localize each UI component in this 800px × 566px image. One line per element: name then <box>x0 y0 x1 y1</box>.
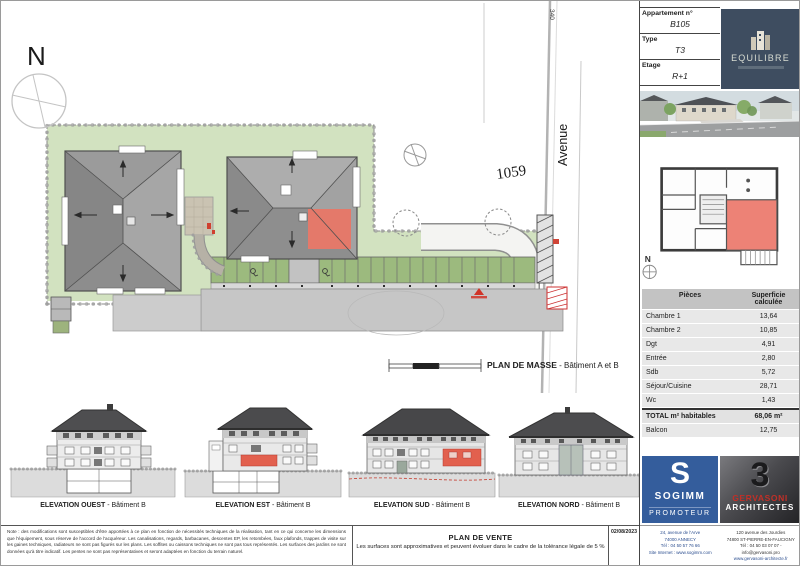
table-row: Entrée2,80 <box>642 352 799 365</box>
elevation-ouest-suffix: - Bâtiment B <box>105 502 145 509</box>
address-line: Site Internet : www.sogimm.com <box>640 550 721 557</box>
elevation-ouest-drawing <box>9 395 177 499</box>
sogimm-logo: S SOGIMM PROMOTEUR <box>642 456 718 523</box>
plan-de-vente-box: PLAN DE VENTE Les surfaces sont approxim… <box>353 526 609 566</box>
gervasoni-logo: 3 GERVASONI ARCHITECTES <box>720 456 800 523</box>
site-plan-area: 340 Avenue 1059 <box>1 1 639 525</box>
gervasoni-address: 120 avenue des Jourdies 74800 ST-PIERRE-… <box>721 526 800 566</box>
site-plan-drawing: 340 Avenue 1059 <box>1 1 639 393</box>
header-superficie: Superficie calculée <box>738 289 799 309</box>
table-row: Sdb5,72 <box>642 366 799 379</box>
row-value: 2,80 <box>738 352 799 365</box>
apartment-number-value: B105 <box>642 19 718 29</box>
elevation-est-title: ELEVATION EST <box>215 502 270 509</box>
row-label: Entrée <box>642 352 738 365</box>
date-label: 02/08/2023 <box>609 526 639 566</box>
red-hatched-plot <box>547 287 567 309</box>
address-line: 24, avenue de l'Arve <box>640 530 721 537</box>
address-line: 74800 ST-PIERRE-EN-FAUCIGNY <box>721 537 800 544</box>
brand-tagline-bar <box>738 66 784 69</box>
header-pieces: Pièces <box>642 289 738 309</box>
row-value: 13,64 <box>738 310 799 323</box>
balcony-label: Balcon <box>642 424 738 437</box>
sogimm-role: PROMOTEUR <box>649 507 711 517</box>
apartment-number-label: Appartement n° <box>642 10 718 17</box>
address-line: 120 avenue des Jourdies <box>721 530 800 537</box>
north-label: N <box>27 41 46 71</box>
building-b <box>227 151 360 262</box>
plan-de-masse-title: PLAN DE MASSE <box>487 360 557 370</box>
elevation-nord: ELEVATION NORD - Bâtiment B <box>495 395 643 509</box>
key-plan-north-icon: N <box>643 254 656 278</box>
surface-table: Pièces Superficie calculée Chambre 113,6… <box>642 289 799 438</box>
table-balcony-row: Balcon12,75 <box>642 424 799 437</box>
addresses: 24, avenue de l'Arve 74000 ANNECY Tél : … <box>640 525 800 566</box>
elevation-sud-title: ELEVATION SUD <box>374 502 430 509</box>
row-label: Chambre 1 <box>642 310 738 323</box>
row-label: Wc <box>642 394 738 407</box>
table-row: Dgt4,91 <box>642 338 799 351</box>
elevation-sud-suffix: - Bâtiment B <box>430 502 470 509</box>
small-compass-icon <box>404 144 426 166</box>
table-row: Chambre 210,85 <box>642 324 799 337</box>
row-value: 10,85 <box>738 324 799 337</box>
gervasoni-role: ARCHITECTES <box>720 503 800 512</box>
elevation-ouest-title: ELEVATION OUEST <box>40 502 105 509</box>
brand-name: EQUILIBRE <box>731 53 790 63</box>
table-row: Wc1,43 <box>642 394 799 407</box>
elevation-est-drawing <box>183 395 343 499</box>
plan-de-masse-suffix: - Bâtiment A et B <box>557 361 619 370</box>
elevation-ouest: ELEVATION OUEST - Bâtiment B <box>9 395 177 509</box>
footer-strip: Note : des modifications sont susceptibl… <box>1 525 639 566</box>
avenue-label: Avenue <box>556 124 570 166</box>
balcony-value: 12,75 <box>738 424 799 437</box>
apartment-floor-value: R+1 <box>642 71 718 81</box>
row-label: Chambre 2 <box>642 324 738 337</box>
scale-bar <box>389 359 481 372</box>
parcel-number: 1059 <box>495 163 527 183</box>
elevation-est-suffix: - Bâtiment B <box>270 502 310 509</box>
plan-de-vente-subtitle: Les surfaces sont approximatives et peuv… <box>353 544 608 550</box>
sogimm-monogram: S <box>642 459 718 489</box>
apartment-type-label: Type <box>642 36 718 43</box>
neighbour-building-hatched <box>537 215 559 283</box>
equilibre-logo: EQUILIBRE <box>721 9 800 89</box>
address-line: 74000 ANNECY <box>640 537 721 544</box>
table-row: Séjour/Cuisine28,71 <box>642 380 799 393</box>
row-value: 28,71 <box>738 380 799 393</box>
road-ref-label: 340 <box>548 9 555 20</box>
internal-road <box>113 288 563 335</box>
plan-de-masse-caption: PLAN DE MASSE - Bâtiment A et B <box>487 360 637 370</box>
elevation-est-highlight <box>241 455 277 466</box>
row-value: 5,72 <box>738 366 799 379</box>
avenue-road <box>542 1 581 393</box>
row-label: Sdb <box>642 366 738 379</box>
key-plan-unit-highlight <box>727 200 777 250</box>
row-value: 1,43 <box>738 394 799 407</box>
plan-de-vente-title: PLAN DE VENTE <box>353 533 608 542</box>
table-row: Chambre 113,64 <box>642 310 799 323</box>
total-value: 68,06 m² <box>738 410 799 423</box>
bin-shelter <box>51 297 71 333</box>
sogimm-name: SOGIMM <box>642 491 718 502</box>
footer-note: Note : des modifications sont susceptibl… <box>1 526 353 566</box>
row-value: 4,91 <box>738 338 799 351</box>
north-compass-icon: N <box>12 41 66 128</box>
address-line: Tél : 04 50 03 07 07 - info@gervasoni.pr… <box>721 543 800 556</box>
key-floor-plan: N <box>640 161 800 283</box>
key-plan-balcony <box>741 250 777 264</box>
address-line: Tél : 04 50 57 76 66 <box>640 543 721 550</box>
elevation-sud-drawing <box>347 395 497 499</box>
row-label: Séjour/Cuisine <box>642 380 738 393</box>
apartment-floor-field: Etage R+1 <box>640 60 720 86</box>
key-plan-north-label: N <box>645 254 651 264</box>
sogimm-address: 24, avenue de l'Arve 74000 ANNECY Tél : … <box>640 526 721 566</box>
address-line: www.gervasoni-architecte.fr <box>721 556 800 563</box>
total-label: TOTAL m² habitables <box>642 410 738 423</box>
apartment-info: Appartement n° B105 Type T3 Etage R+1 <box>640 7 720 86</box>
gervasoni-name: GERVASONI <box>720 493 800 503</box>
elevation-nord-suffix: - Bâtiment B <box>580 502 620 509</box>
equilibre-building-icon <box>748 30 774 50</box>
plan-de-vente-sheet: 340 Avenue 1059 <box>0 0 800 566</box>
gervasoni-glyph: 3 <box>720 457 800 493</box>
elevation-sud: ELEVATION SUD - Bâtiment B <box>347 395 497 509</box>
apartment-type-field: Type T3 <box>640 34 720 60</box>
elevation-sud-highlight <box>443 449 481 466</box>
table-total-row: TOTAL m² habitables68,06 m² <box>642 408 799 423</box>
project-photo <box>640 91 800 137</box>
surface-table-header: Pièces Superficie calculée <box>642 289 799 309</box>
building-a <box>62 146 184 294</box>
elevation-nord-title: ELEVATION NORD <box>518 502 580 509</box>
row-label: Dgt <box>642 338 738 351</box>
elevation-est: ELEVATION EST - Bâtiment B <box>183 395 343 509</box>
elevation-nord-drawing <box>497 395 641 499</box>
apartment-floor-label: Etage <box>642 62 718 69</box>
logos-row: S SOGIMM PROMOTEUR 3 GERVASONI ARCHITECT… <box>642 456 800 523</box>
apartment-number-field: Appartement n° B105 <box>640 8 720 34</box>
sidebar: Appartement n° B105 Type T3 Etage R+1 EQ… <box>639 1 800 566</box>
apartment-type-value: T3 <box>642 45 718 55</box>
